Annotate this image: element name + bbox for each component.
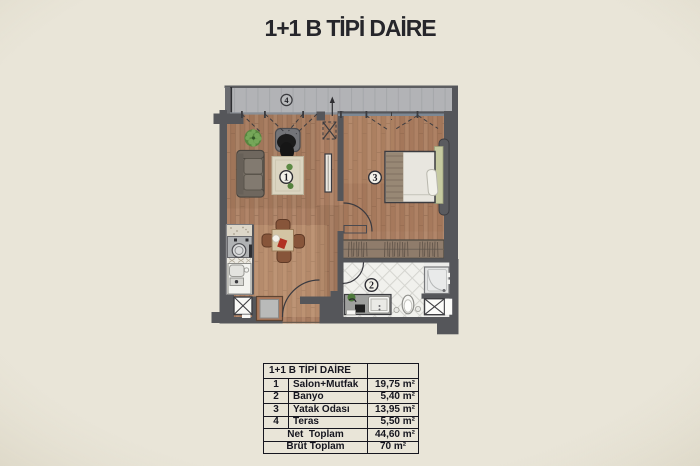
svg-text:1: 1 bbox=[284, 173, 289, 184]
svg-text:3: 3 bbox=[373, 173, 378, 184]
svg-text:2: 2 bbox=[369, 281, 374, 292]
